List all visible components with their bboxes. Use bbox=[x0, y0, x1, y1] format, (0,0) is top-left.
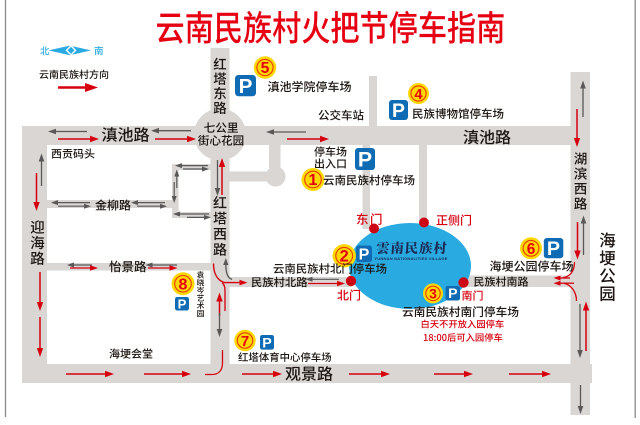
svg-text:P: P bbox=[547, 238, 560, 260]
svg-text:6: 6 bbox=[527, 241, 536, 258]
svg-text:4: 4 bbox=[414, 87, 423, 103]
svg-text:P: P bbox=[392, 100, 405, 122]
svg-text:5: 5 bbox=[261, 60, 270, 77]
svg-text:P: P bbox=[448, 285, 457, 301]
svg-text:P: P bbox=[359, 246, 370, 263]
svg-text:YUNNAN NATIONALITIES VILLAGE: YUNNAN NATIONALITIES VILLAGE bbox=[374, 256, 447, 261]
svg-text:P: P bbox=[178, 296, 187, 311]
svg-text:1: 1 bbox=[309, 171, 318, 189]
svg-text:3: 3 bbox=[429, 285, 437, 301]
svg-text:2: 2 bbox=[340, 248, 349, 266]
svg-text:8: 8 bbox=[179, 276, 188, 294]
svg-text:7: 7 bbox=[241, 333, 249, 350]
svg-text:P: P bbox=[262, 335, 271, 351]
svg-text:P: P bbox=[239, 75, 253, 98]
svg-text:P: P bbox=[358, 148, 372, 172]
